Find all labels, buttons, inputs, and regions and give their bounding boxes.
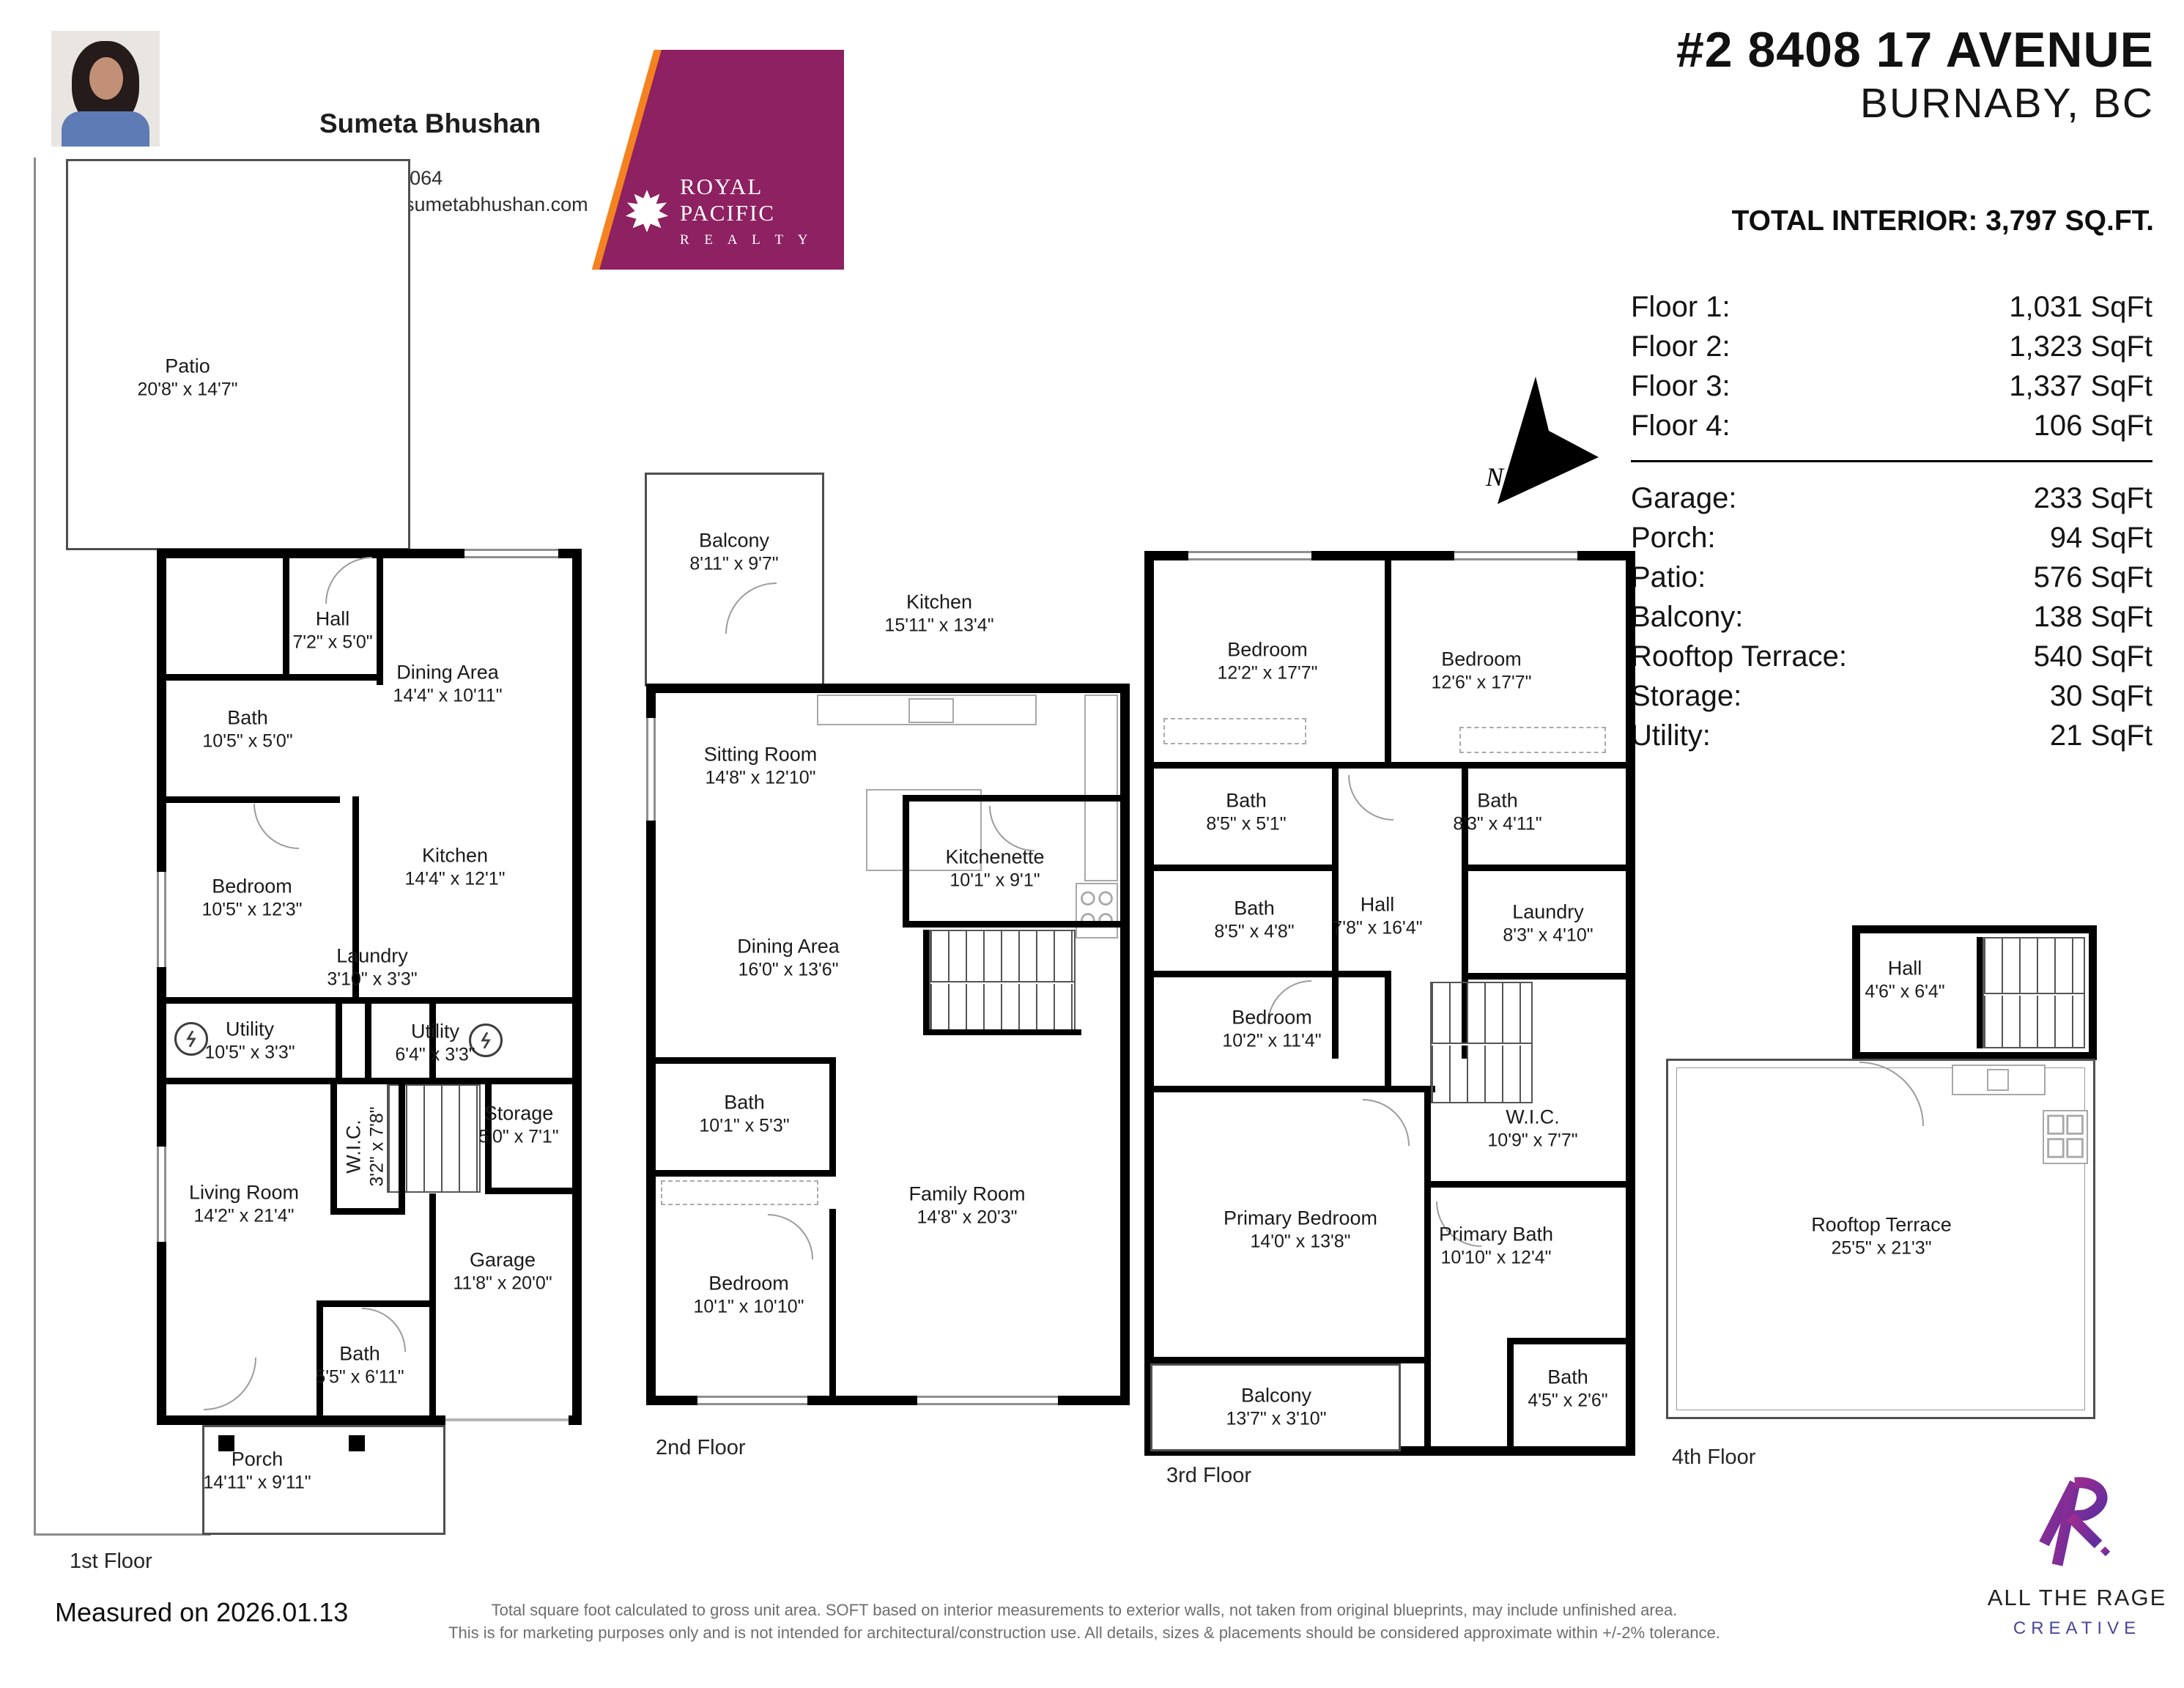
wall [336,997,342,1084]
summary-value: 94 SqFt [2050,518,2152,558]
floor-plan-4: Hall4'6" x 6'4" Rooftop Terrace25'5" x 2… [1663,919,2182,1467]
room-label: Hall7'8" x 16'4" [1332,892,1422,940]
brokerage-subtitle: R E A L T Y [680,232,835,248]
summary-label: Floor 1: [1631,287,1730,327]
room-label: Sitting Room14'8" x 12'10" [704,742,818,790]
wall [1424,1181,1635,1188]
wall [330,1084,337,1213]
room-label: Bath8'5" x 4'8" [1214,896,1294,944]
summary-row: Floor 4:106 SqFt [1631,406,2152,445]
property-line [34,158,36,1535]
wall [1144,1086,1435,1092]
window [157,872,166,967]
summary-label: Floor 4: [1631,406,1730,445]
room-label: Kitchenette10'1" x 9'1" [945,845,1044,892]
closet [1459,727,1606,753]
room-label: Kitchen14'4" x 12'1" [404,843,505,891]
wall [157,796,340,803]
wall [1144,971,1391,977]
wall [1144,762,1635,769]
summary-label: Utility: [1631,716,1711,755]
agent-photo [51,31,160,147]
floor-plan-2: Balcony8'11" x 9'7" Kitchen15'11" x 13'4… [645,473,1134,1465]
room-label: Bath8'5" x 5'1" [1206,788,1286,836]
room-label: W.I.C.10'9" x 7'7" [1487,1105,1577,1152]
wall [330,1208,405,1215]
room-label: Laundry3'10" x 3'3" [327,944,417,991]
garage-door-line [445,1418,569,1421]
summary-label: Floor 2: [1631,327,1730,366]
room-label: Storage5'0" x 7'1" [478,1101,558,1149]
disclaimer-line2: This is for marketing purposes only and … [410,1621,1758,1644]
room-label: W.I.C.3'2" x 7'8" [341,1106,389,1186]
summary-label: Porch: [1631,518,1716,558]
wall [1385,551,1391,765]
summary-value: 1,031 SqFt [2009,287,2152,327]
window [1188,551,1311,560]
balcony-outline [645,473,824,686]
room-label: Bath10'5" x 5'0" [202,706,292,753]
wall [646,1057,835,1064]
room-label: Rooftop Terrace25'5" x 21'3" [1811,1213,1952,1260]
address-line2: BURNABY, BC [1392,79,2154,127]
stairs [1430,982,1533,1103]
stairs [929,930,1076,1032]
wall [923,930,929,1032]
property-line [34,1533,211,1536]
room-label: Dining Area16'0" x 13'6" [737,934,840,982]
room-label: Kitchen15'11" x 13'4" [884,590,993,637]
wall [429,1193,436,1425]
floor-plan-3: Bedroom12'2" x 17'7" Bedroom12'6" x 17'7… [1143,542,1638,1491]
stove [1076,883,1118,939]
agent-name: Sumeta Bhushan [319,108,541,139]
wall [923,1029,1081,1035]
agent-face [89,57,123,100]
summary-value: 1,323 SqFt [2009,327,2152,366]
summary-row: Balcony:138 SqFt [1631,597,2152,637]
patio-outline [66,159,410,550]
room-label: Utility10'5" x 3'3" [204,1017,295,1065]
window [917,1396,1058,1405]
room-label: Bath10'1" x 5'3" [699,1090,789,1138]
wall [1385,971,1391,1088]
room-label: Balcony13'7" x 3'10" [1226,1383,1326,1431]
maple-leaf-icon [624,188,670,234]
summary-value: 106 SqFt [2034,406,2152,445]
disclaimer: Total square foot calculated to gross un… [410,1599,1758,1644]
compass-n-label: N [1486,462,1503,492]
measured-date: Measured on 2026.01.13 [55,1597,348,1628]
window [157,1147,166,1242]
kitchen-sink [908,698,954,723]
room-label: Porch14'11" x 9'11" [203,1447,311,1495]
wall [1144,1357,1430,1363]
wall [1462,865,1635,871]
closet [661,1180,818,1205]
summary-label: Balcony: [1631,597,1743,637]
room-label: Bath4'5" x 2'6" [1528,1365,1607,1413]
window [646,718,656,821]
total-interior: TOTAL INTERIOR: 3,797 SQ.FT. [1392,205,2154,237]
brokerage-name: ROYAL PACIFIC [680,174,835,226]
room-label: Primary Bedroom14'0" x 13'8" [1224,1206,1377,1254]
room-label: Bedroom12'6" x 17'7" [1431,647,1531,695]
floor-caption: 4th Floor [1672,1445,1755,1470]
summary-label: Storage: [1631,676,1741,716]
electrical-icon [174,1022,208,1056]
floor-plan-1: Patio20'8" x 14'7" Hall7'2" x 5'0" Dinin… [34,158,585,1575]
summary-value: 138 SqFt [2034,597,2152,637]
summary-value: 30 SqFt [2050,676,2152,716]
room-label: Balcony8'11" x 9'7" [689,528,778,576]
room-label: Bath5'5" x 6'11" [315,1341,404,1389]
room-label: Garage11'8" x 20'0" [453,1248,552,1295]
room-label: Hall7'2" x 5'0" [292,607,372,654]
floor-caption: 1st Floor [70,1550,152,1574]
room-label: Laundry8'3" x 4'10" [1503,900,1593,947]
room-label: Family Room14'8" x 20'3" [908,1182,1025,1229]
flyer-canvas: Sumeta Bhushan 778-919-8064 sumeta@sumet… [0,0,2184,1688]
summary-row: Utility:21 SqFt [1631,716,2152,755]
wall [1424,1086,1431,1456]
window [1454,551,1577,560]
wall [157,674,377,681]
wall [829,1057,836,1177]
room-label: Living Room14'2" x 21'4" [189,1180,299,1228]
outdoor-sink [1987,1069,2009,1091]
window [464,549,558,558]
room-label: Bedroom10'5" x 12'3" [201,874,302,922]
room-label: Primary Bath10'10" x 12'4" [1439,1222,1553,1270]
summary-label: Garage: [1631,478,1737,518]
summary-row: Storage:30 SqFt [1631,676,2152,716]
credit-logo: ALL THE RAGE CREATIVE [1956,1474,2184,1639]
wall [399,1084,405,1213]
grill [2043,1110,2088,1164]
room-label: Bath8'3" x 4'11" [1453,788,1541,836]
kitchen-counter [1084,695,1118,881]
wall [646,1170,835,1177]
summary-label: Patio: [1631,558,1706,597]
summary-row: Floor 2:1,323 SqFt [1631,327,2152,366]
header-right: #2 8408 17 AVENUE BURNABY, BC TOTAL INTE… [1392,21,2154,237]
wall [903,921,1127,928]
summary-row: Garage:233 SqFt [1631,478,2152,518]
summary-label: Floor 3: [1631,366,1730,406]
window [697,1396,807,1405]
summary-row: Floor 3:1,337 SqFt [1631,366,2152,406]
wall [1507,1338,1514,1456]
address-line1: #2 8408 17 AVENUE [1392,21,2154,79]
porch-post [349,1435,365,1451]
stairs [1983,937,2085,1048]
wall [377,549,383,685]
floor-caption: 2nd Floor [656,1436,746,1460]
wall [903,795,909,927]
floor-summary: Floor 1:1,031 SqFt Floor 2:1,323 SqFt Fl… [1631,287,2152,755]
closet [1163,718,1306,744]
north-arrow-icon [1487,372,1612,519]
wall [1462,973,1635,980]
summary-value: 1,337 SqFt [2009,366,2152,406]
room-label: Dining Area14'4" x 10'11" [393,660,502,708]
summary-value: 540 SqFt [2034,637,2152,676]
all-the-rage-monogram-icon [2022,1474,2132,1573]
summary-value: 233 SqFt [2034,478,2152,518]
wall [1144,865,1339,871]
wall [829,1209,836,1405]
summary-value: 576 SqFt [2034,558,2152,597]
summary-row: Porch:94 SqFt [1631,518,2152,558]
brokerage-logo: ROYAL PACIFIC R E A L T Y [624,167,835,255]
floor-caption: 3rd Floor [1166,1464,1251,1488]
credit-tagline: CREATIVE [2013,1618,2141,1639]
room-label: Bedroom12'2" x 17'7" [1217,637,1317,685]
wall [283,549,289,679]
wall [365,997,371,1084]
wall [1507,1338,1635,1344]
agent-blazer [62,111,149,147]
wall [1977,937,1983,1048]
wall [317,1300,433,1307]
room-label: Utility6'4" x 3'3" [395,1019,475,1067]
wall [903,795,1127,802]
room-label: Patio20'8" x 14'7" [137,354,237,401]
summary-row: Patio:576 SqFt [1631,558,2152,597]
room-label: Hall4'6" x 6'4" [1865,956,1944,1004]
summary-row: Floor 1:1,031 SqFt [1631,287,2152,327]
summary-divider [1631,460,2152,462]
room-label: Bedroom10'1" x 10'10" [693,1271,804,1319]
wall [485,1188,582,1194]
summary-row: Rooftop Terrace:540 SqFt [1631,637,2152,676]
disclaimer-line1: Total square foot calculated to gross un… [410,1599,1758,1621]
summary-value: 21 SqFt [2050,716,2152,755]
room-label: Bedroom10'2" x 11'4" [1222,1005,1321,1053]
summary-label: Rooftop Terrace: [1631,637,1847,676]
credit-studio: ALL THE RAGE [1988,1585,2167,1611]
